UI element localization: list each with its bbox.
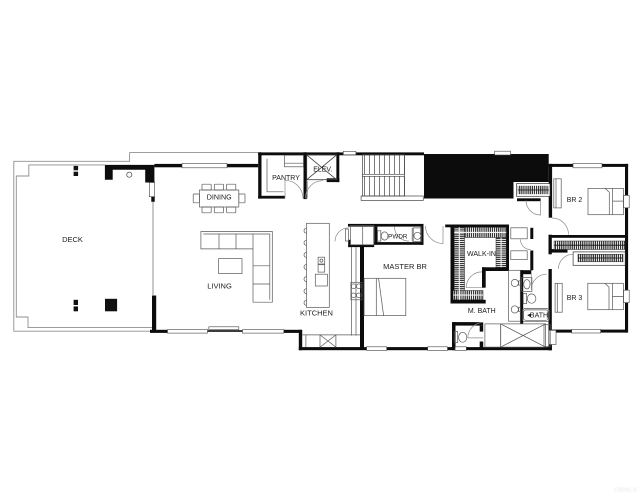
svg-text:◄: ◄ bbox=[526, 313, 532, 319]
svg-text:KITCHEN: KITCHEN bbox=[300, 308, 333, 317]
svg-text:M. BATH: M. BATH bbox=[468, 308, 496, 315]
svg-text:DECK: DECK bbox=[62, 235, 83, 244]
svg-text:PANTRY: PANTRY bbox=[272, 175, 300, 182]
svg-text:MASTER BR: MASTER BR bbox=[383, 262, 427, 271]
svg-text:PWDR: PWDR bbox=[388, 233, 408, 240]
svg-text:ELEV.: ELEV. bbox=[313, 166, 332, 173]
svg-text:BR 2: BR 2 bbox=[567, 197, 583, 204]
svg-text:BATH: BATH bbox=[530, 313, 548, 320]
svg-text:WALK-IN: WALK-IN bbox=[467, 251, 496, 258]
svg-text:BR 3: BR 3 bbox=[567, 295, 583, 302]
svg-text:DINING: DINING bbox=[207, 194, 232, 202]
svg-text:CRMLS: CRMLS bbox=[614, 487, 637, 494]
svg-text:LIVING: LIVING bbox=[207, 281, 232, 290]
